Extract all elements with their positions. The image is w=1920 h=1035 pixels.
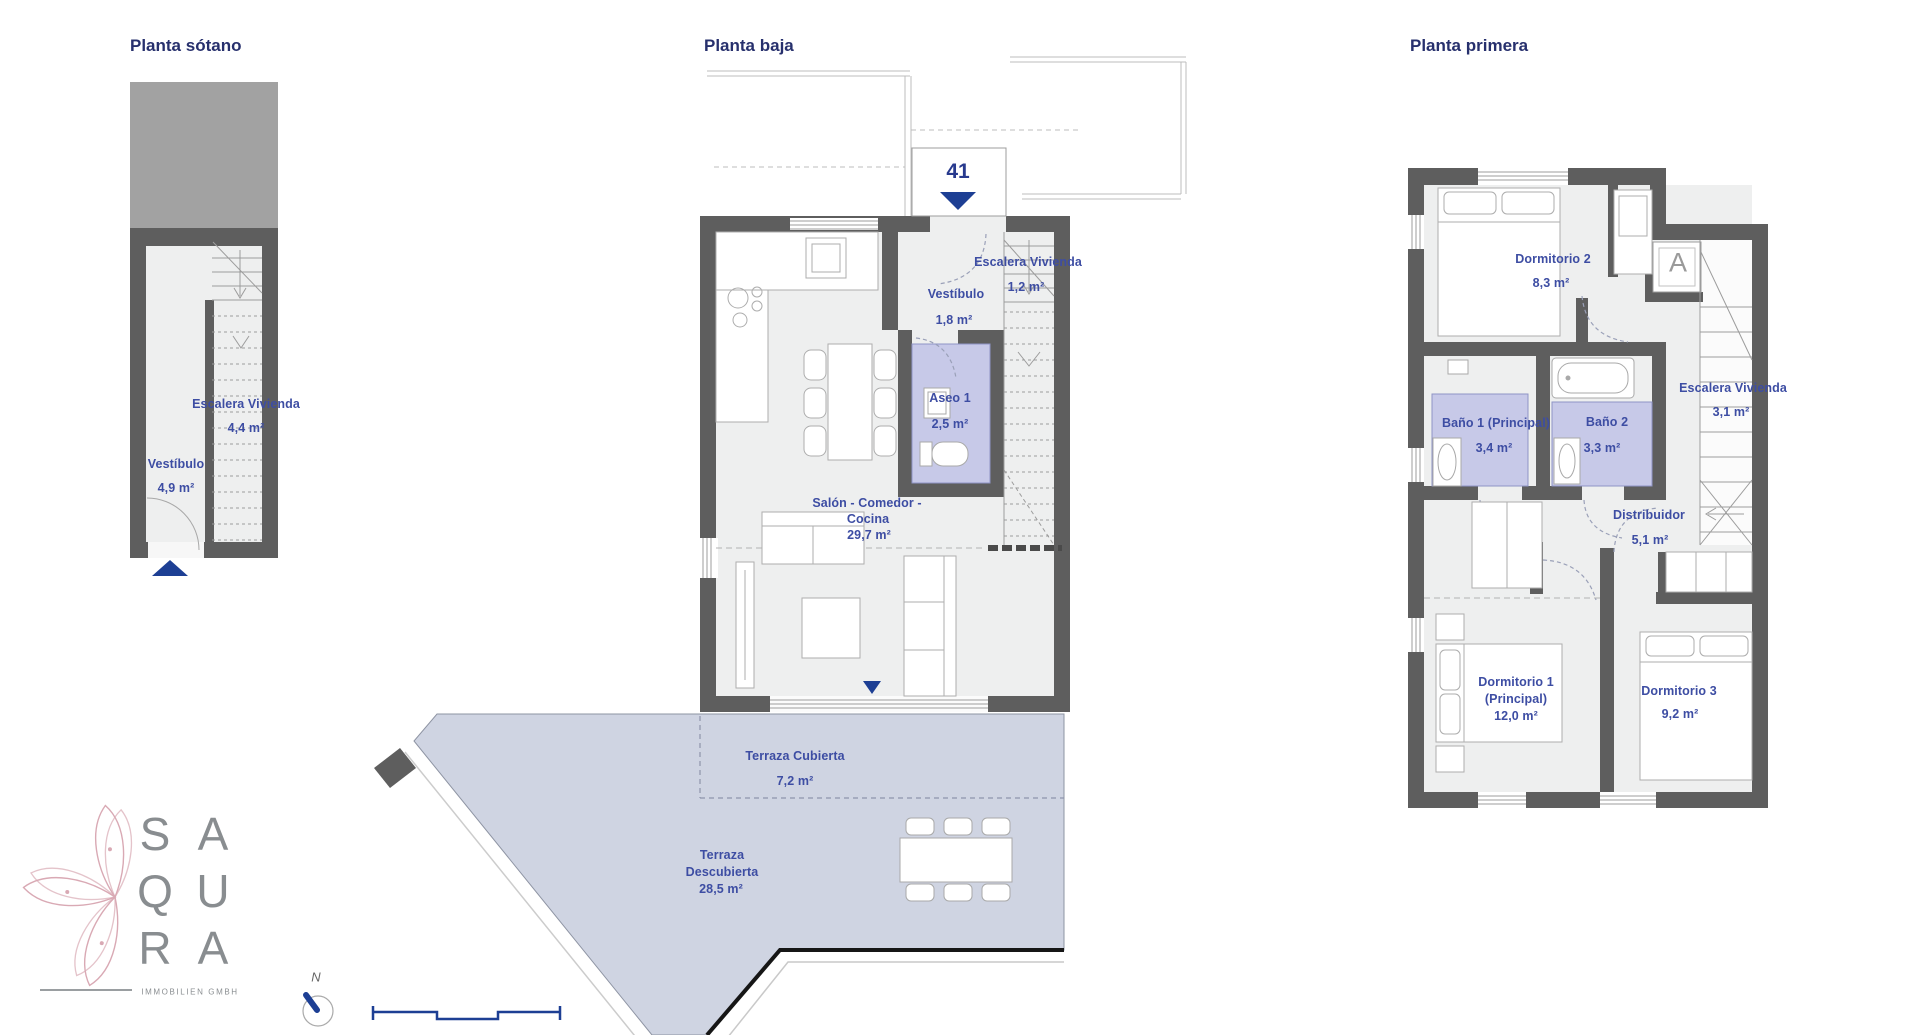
basement-entrance-arrow-icon: [152, 560, 188, 576]
room-area: 12,0 m²: [1494, 709, 1538, 723]
bed-dormitorio-3: [1640, 632, 1752, 780]
room-area: 2,5 m²: [932, 417, 969, 431]
basement-stair-wall: [205, 300, 214, 542]
room-area: 9,2 m²: [1662, 707, 1699, 721]
room-label-dormitorio-1: Dormitorio 1: [1478, 675, 1554, 689]
kitchen-window: [790, 218, 878, 230]
room-area: 3,3 m²: [1584, 441, 1621, 455]
logo-letters: S A Q U R A: [126, 806, 242, 976]
room-area: 1,8 m²: [936, 313, 973, 327]
unit-number: 41: [946, 160, 969, 184]
room-label-dormitorio-3: Dormitorio 3: [1641, 684, 1717, 698]
room-label-escalera-vivienda: Escalera Vivienda: [192, 397, 300, 411]
room-area: 28,5 m²: [699, 882, 743, 896]
room-area: 3,1 m²: [1713, 405, 1750, 419]
north-arrow-icon: [303, 995, 333, 1026]
tv-unit: [736, 562, 754, 688]
ground-floor-plan: [374, 57, 1186, 1035]
room-area: 4,4 m²: [228, 421, 265, 435]
room-label-dormitorio-1-line2: (Principal): [1485, 692, 1547, 706]
room-area: 1,2 m²: [1008, 280, 1045, 294]
basement-plan: [130, 82, 278, 576]
logo-letter: Q: [137, 868, 173, 914]
room-label-terraza-cubierta: Terraza Cubierta: [745, 749, 844, 763]
basement-gray-block: [130, 82, 278, 228]
room-label-escalera-vivienda: Escalera Vivienda: [974, 255, 1082, 269]
room-area: 5,1 m²: [1632, 533, 1669, 547]
room-area: 8,3 m²: [1533, 276, 1570, 290]
basement-title: Planta sótano: [130, 36, 241, 56]
logo-letter: A: [198, 811, 229, 857]
room-area: 3,4 m²: [1476, 441, 1513, 455]
room-area: 29,7 m²: [847, 528, 891, 542]
logo-letter: U: [196, 868, 229, 914]
ac-unit-label: A: [1669, 248, 1687, 279]
room-label-salon-line2: Cocina: [847, 512, 889, 526]
outdoor-table: [900, 818, 1012, 901]
logo-divider-line: [40, 989, 132, 991]
north-label: N: [311, 970, 320, 985]
logo-letter: A: [198, 925, 229, 971]
terrace-sliding-door: [770, 696, 988, 712]
room-label-distribuidor: Distribuidor: [1613, 508, 1685, 522]
room-label-terraza-descubierta-line2: Descubierta: [686, 865, 759, 879]
room-label-dormitorio-2: Dormitorio 2: [1515, 252, 1591, 266]
terrace-wall-stub: [374, 748, 416, 788]
coffee-table: [802, 598, 860, 658]
logo-letter: R: [138, 925, 171, 971]
room-label-escalera-vivienda: Escalera Vivienda: [1679, 381, 1787, 395]
logo-letter: S: [140, 811, 171, 857]
room-area: 7,2 m²: [777, 774, 814, 788]
room-label-bano-1: Baño 1 (Principal): [1442, 416, 1550, 430]
wardrobe: [1614, 190, 1652, 274]
ground-floor-title: Planta baja: [704, 36, 794, 56]
bathtub: [1552, 358, 1634, 398]
logo-flower-icon: [22, 803, 143, 990]
first-floor-title: Planta primera: [1410, 36, 1528, 56]
room-label-vestibulo: Vestíbulo: [928, 287, 984, 301]
logo-subtitle: IMMOBILIEN GMBH: [141, 988, 238, 997]
room-label-salon: Salón - Comedor -: [812, 496, 921, 510]
dining-table: [804, 344, 896, 460]
room-area: 4,9 m²: [158, 481, 195, 495]
salon-window: [698, 538, 718, 578]
floorplan-sheet: Planta sótano Planta baja Planta primera…: [0, 0, 1920, 1035]
room-label-aseo: Aseo 1: [929, 391, 971, 405]
room-label-terraza-descubierta: Terraza: [700, 848, 744, 862]
room-label-vestibulo: Vestíbulo: [148, 457, 204, 471]
room-label-bano-2: Baño 2: [1586, 415, 1628, 429]
scale-bar: [373, 1006, 560, 1020]
